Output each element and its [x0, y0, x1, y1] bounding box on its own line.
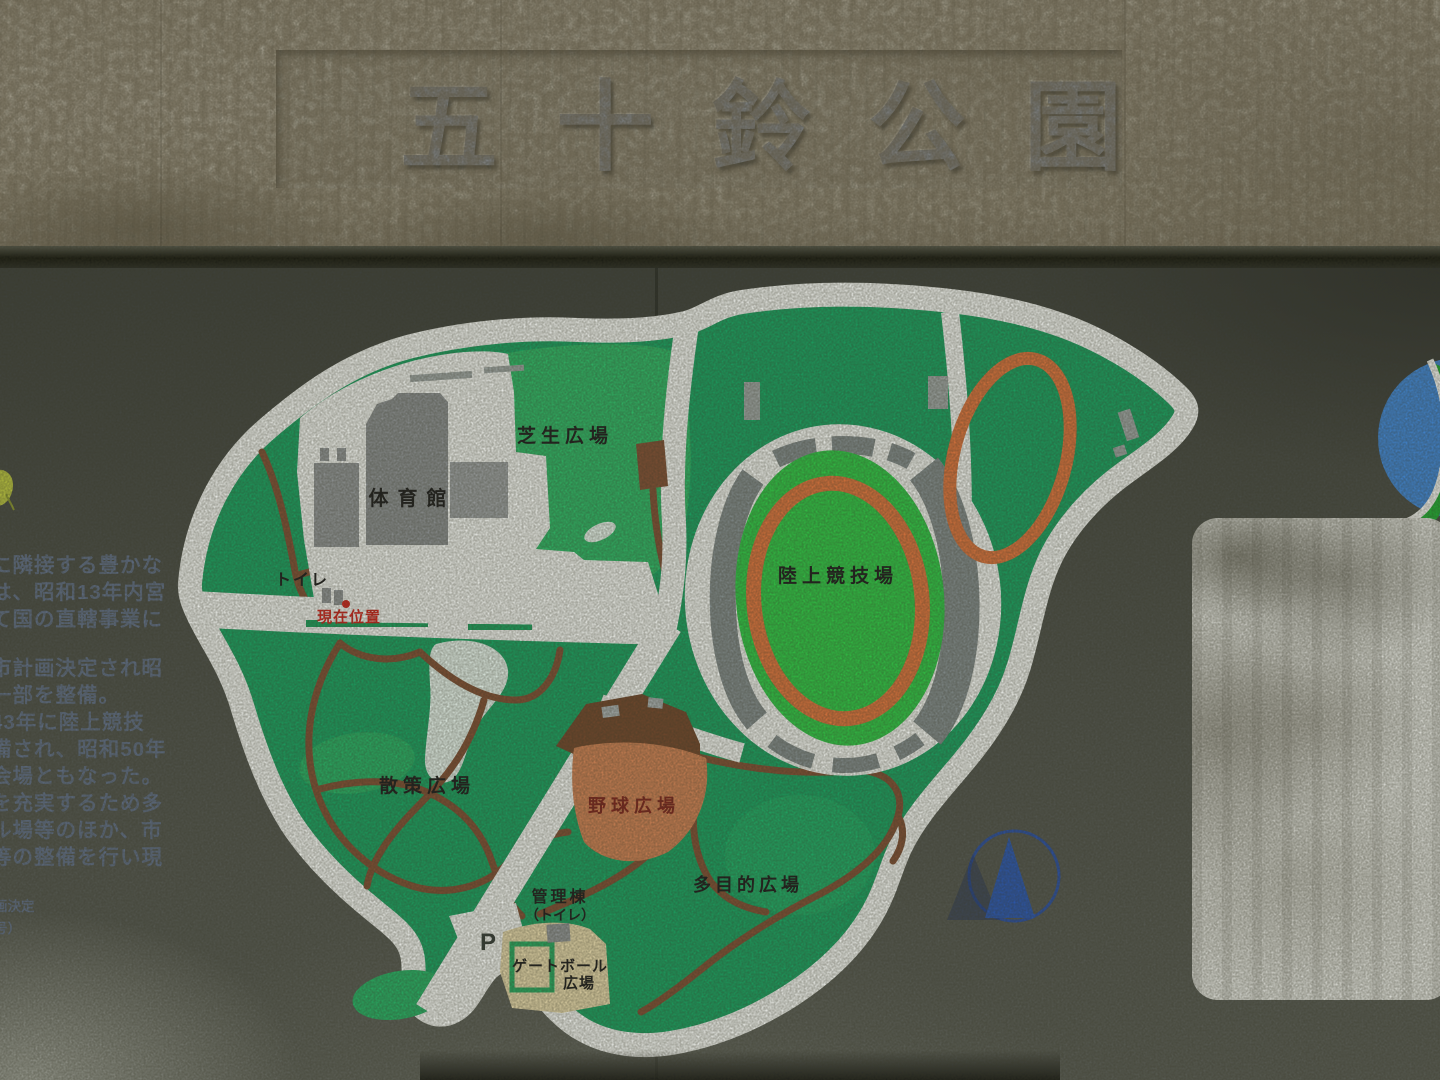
- faded-legend-panel: [1192, 518, 1440, 1000]
- description-line: 43年に陸上競技: [0, 709, 181, 736]
- description-line: に隣接する豊かな: [0, 552, 181, 579]
- description-line: ル場等のほか、市: [0, 817, 181, 844]
- park-title: 五十鈴公園: [336, 48, 1180, 190]
- description-line: は、昭和13年内宮: [0, 579, 181, 606]
- description-line: て国の直轄事業に: [0, 606, 181, 633]
- bottom-shadow: [420, 1050, 1060, 1080]
- footnote-line: 画決定: [0, 896, 35, 918]
- description-line: 一部を整備。: [0, 682, 181, 709]
- description-line: 市計画決定され昭: [0, 655, 181, 682]
- description-text: に隣接する豊かな は、昭和13年内宮 て国の直轄事業に 市計画決定され昭 一部を…: [0, 552, 181, 871]
- wall-edge: [0, 246, 1440, 268]
- concrete-wall: 五十鈴公園: [0, 0, 1440, 246]
- description-footnote: 画決定 号）: [0, 896, 35, 940]
- footnote-line: 号）: [0, 918, 35, 940]
- description-line: 備され、昭和50年: [0, 736, 181, 763]
- description-line: を充実するため多: [0, 790, 181, 817]
- park-sign-photo: 五十鈴公園 に隣接する豊かな は、昭和13年内宮 て国の直轄事業に 市計画決定さ…: [0, 0, 1440, 1080]
- board-seam: [655, 268, 658, 1080]
- wall-joint: [160, 0, 162, 246]
- title-panel: 五十鈴公園: [276, 50, 1122, 188]
- description-line: 会場ともなった。: [0, 763, 181, 790]
- description-line: 等の整備を行い現: [0, 844, 181, 871]
